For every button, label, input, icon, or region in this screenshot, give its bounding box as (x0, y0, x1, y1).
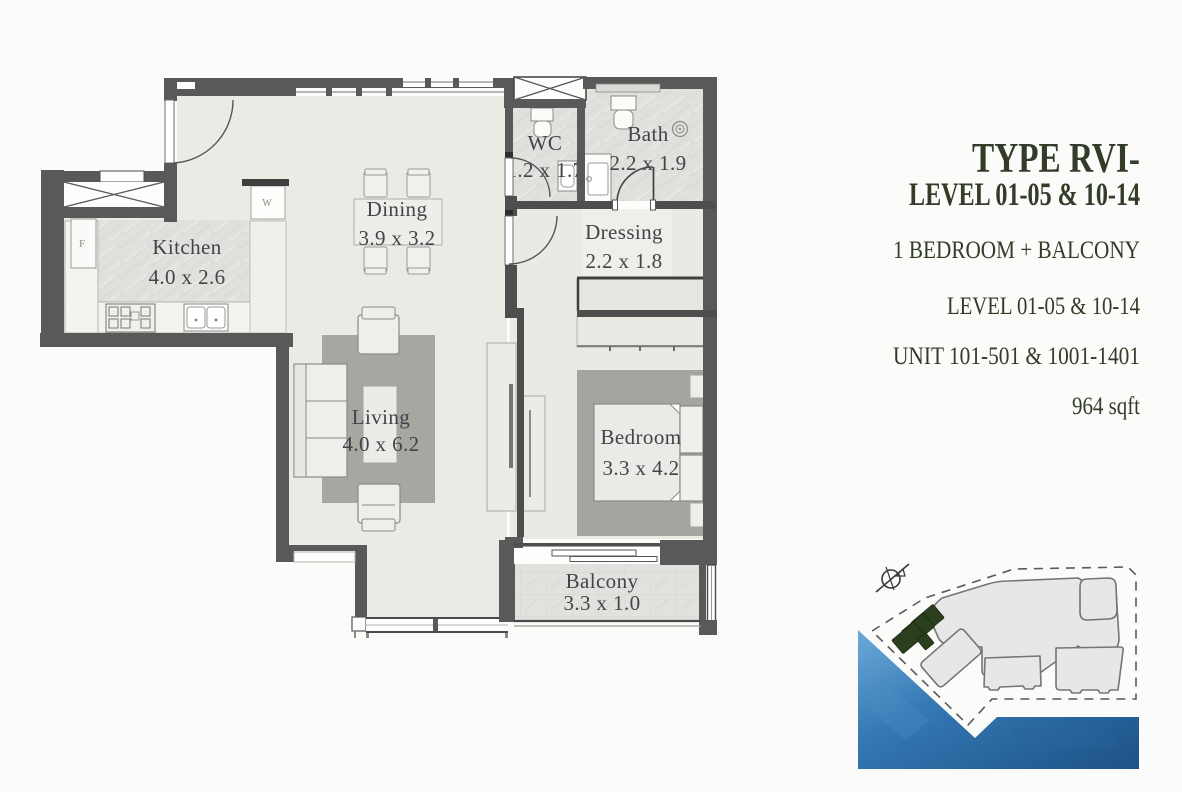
svg-text:4.0 x 2.6: 4.0 x 2.6 (148, 265, 225, 289)
svg-text:LEVEL 01-05 & 10-14: LEVEL 01-05 & 10-14 (909, 177, 1140, 213)
svg-text:4.0 x 6.2: 4.0 x 6.2 (342, 432, 419, 456)
svg-text:Bath: Bath (627, 122, 668, 146)
svg-text:3.3 x 1.0: 3.3 x 1.0 (563, 591, 640, 615)
svg-text:Dressing: Dressing (585, 220, 663, 244)
svg-text:964 sqft: 964 sqft (1072, 393, 1140, 420)
svg-text:Living: Living (352, 405, 410, 429)
svg-text:W: W (262, 198, 272, 209)
svg-text:3.3 x 4.2: 3.3 x 4.2 (602, 456, 679, 480)
svg-text:WC: WC (528, 131, 563, 155)
svg-text:Bedroom: Bedroom (601, 425, 682, 449)
svg-text:3.9 x 3.2: 3.9 x 3.2 (358, 226, 435, 250)
svg-text:UNIT 101-501 & 1001-1401: UNIT 101-501 & 1001-1401 (893, 343, 1140, 370)
svg-text:Dining: Dining (367, 197, 428, 221)
svg-text:F: F (79, 238, 85, 250)
svg-text:2.2 x 1.9: 2.2 x 1.9 (609, 151, 686, 175)
svg-text:Kitchen: Kitchen (152, 235, 221, 259)
svg-text:2.2 x 1.8: 2.2 x 1.8 (585, 249, 662, 273)
svg-text:LEVEL 01-05 & 10-14: LEVEL 01-05 & 10-14 (947, 293, 1140, 320)
svg-text:1 BEDROOM + BALCONY: 1 BEDROOM + BALCONY (893, 237, 1140, 264)
svg-text:TYPE RVI-: TYPE RVI- (972, 136, 1140, 182)
svg-text:Balcony: Balcony (566, 569, 639, 593)
